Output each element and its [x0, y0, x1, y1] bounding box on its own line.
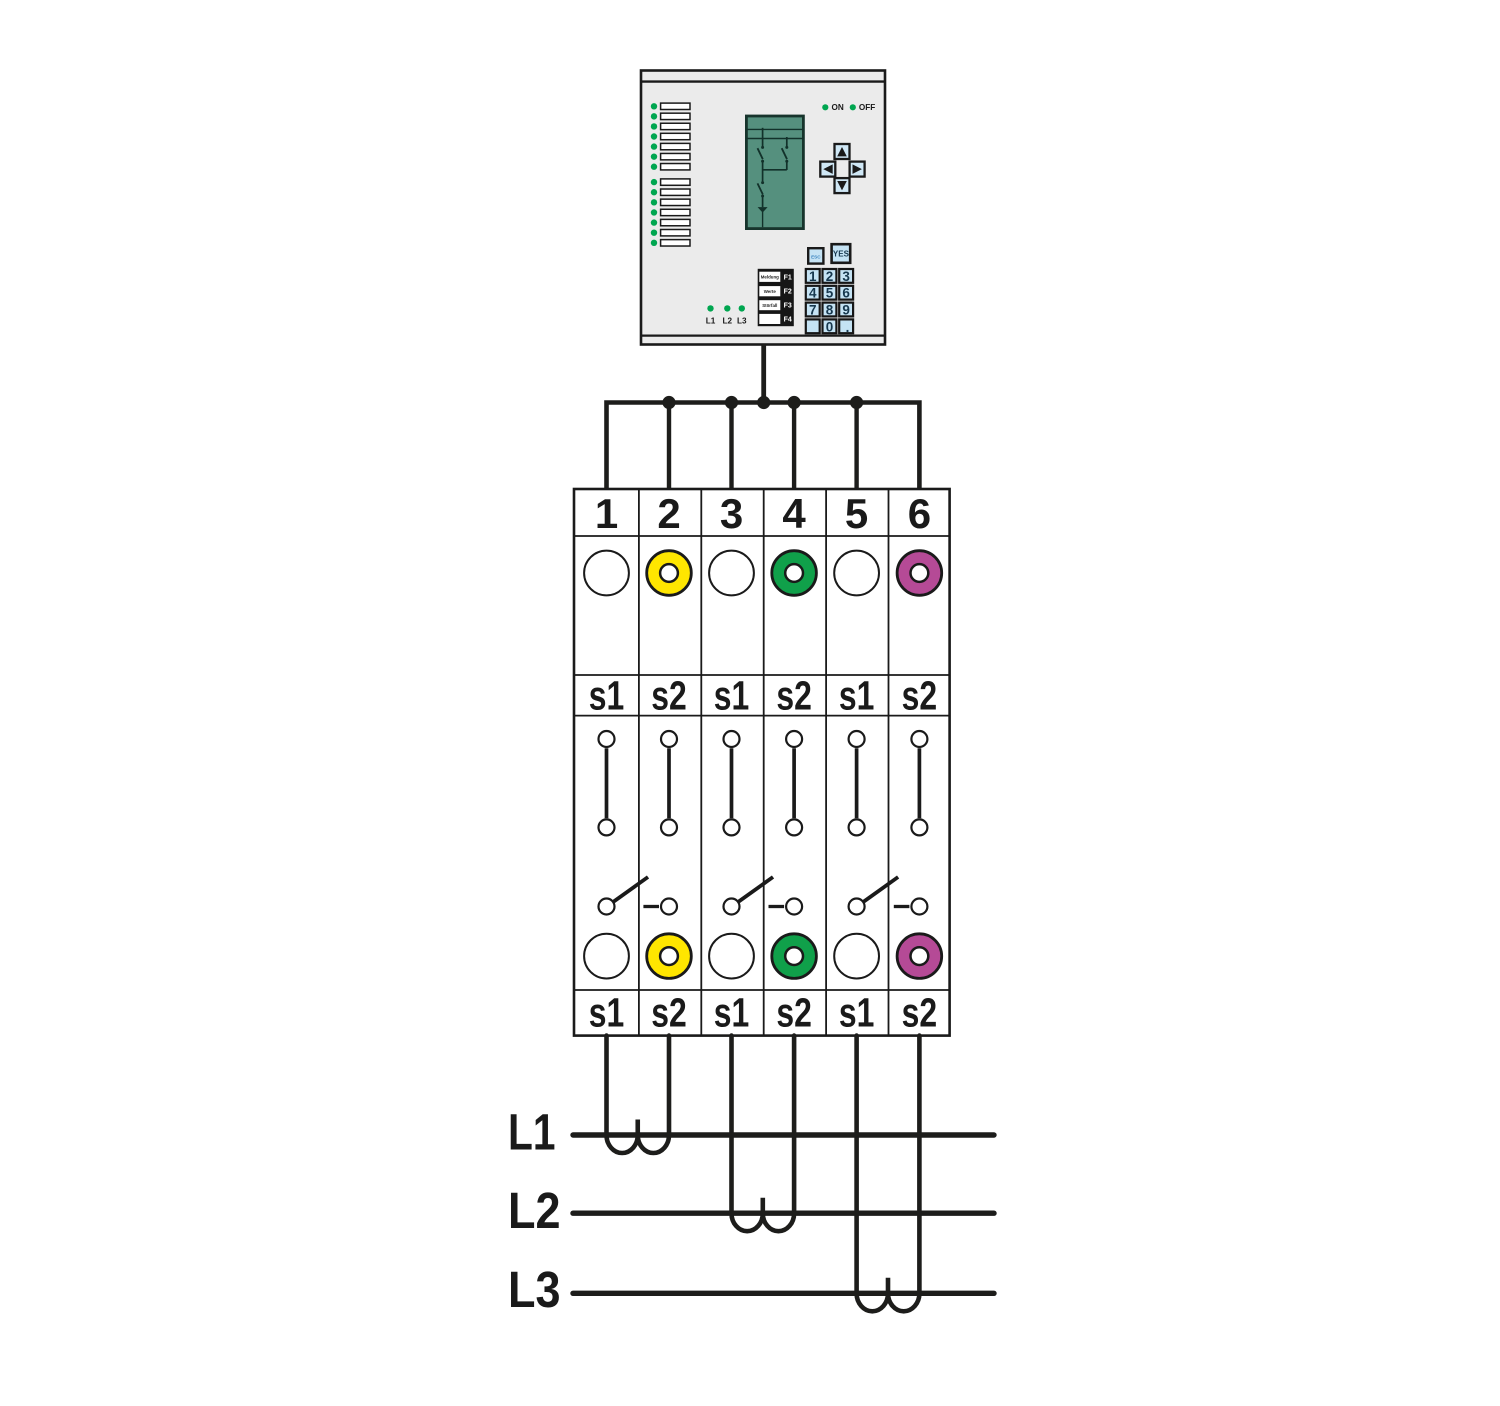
svg-text:L1: L1 [706, 316, 716, 325]
svg-text:s2: s2 [902, 672, 938, 718]
svg-text:Werte: Werte [764, 289, 777, 294]
svg-text:s1: s1 [714, 672, 750, 718]
svg-text:L2: L2 [723, 316, 733, 325]
svg-text:3: 3 [720, 490, 743, 537]
svg-text:.: . [846, 320, 850, 335]
svg-text:5: 5 [845, 490, 868, 537]
svg-text:s2: s2 [651, 672, 687, 718]
svg-text:L2: L2 [508, 1182, 561, 1239]
svg-text:7: 7 [809, 303, 817, 318]
svg-text:1: 1 [809, 269, 817, 284]
svg-text:L3: L3 [737, 316, 747, 325]
svg-text:F1: F1 [784, 274, 792, 281]
svg-text:s1: s1 [589, 672, 625, 718]
svg-text:ON: ON [832, 103, 844, 112]
svg-text:s1: s1 [714, 989, 750, 1035]
svg-text:2: 2 [826, 269, 834, 284]
svg-text:L1: L1 [508, 1104, 556, 1161]
svg-text:s1: s1 [839, 672, 875, 718]
svg-text:5: 5 [826, 286, 834, 301]
svg-text:Meldung: Meldung [761, 274, 779, 279]
svg-text:2: 2 [657, 490, 680, 537]
svg-text:L3: L3 [508, 1261, 561, 1318]
svg-text:ESC: ESC [811, 254, 821, 259]
svg-text:F4: F4 [784, 317, 792, 324]
svg-text:4: 4 [782, 490, 806, 537]
svg-text:s2: s2 [776, 672, 812, 718]
svg-text:F2: F2 [784, 289, 792, 296]
svg-text:0: 0 [826, 319, 834, 334]
svg-text:9: 9 [842, 303, 850, 318]
svg-text:Störfall: Störfall [762, 303, 777, 308]
svg-text:YES: YES [833, 250, 850, 259]
svg-text:F3: F3 [784, 303, 792, 310]
svg-text:s1: s1 [589, 989, 625, 1035]
svg-text:OFF: OFF [859, 103, 875, 112]
svg-text:8: 8 [826, 303, 834, 318]
svg-text:s1: s1 [839, 989, 875, 1035]
svg-text:s2: s2 [776, 989, 812, 1035]
svg-text:4: 4 [809, 286, 817, 301]
svg-text:3: 3 [842, 269, 850, 284]
svg-text:s2: s2 [651, 989, 687, 1035]
svg-text:6: 6 [908, 490, 931, 537]
svg-text:1: 1 [595, 490, 618, 537]
svg-text:6: 6 [842, 286, 850, 301]
svg-text:s2: s2 [902, 989, 938, 1035]
